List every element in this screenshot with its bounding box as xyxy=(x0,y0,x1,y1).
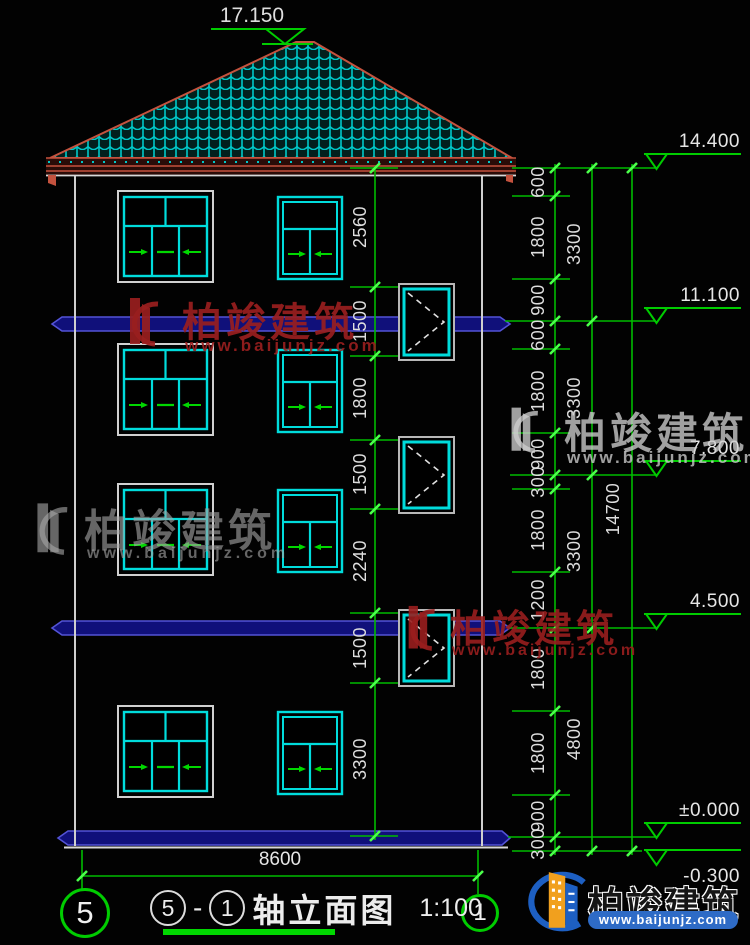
hip-roof xyxy=(46,42,516,186)
drawing-linework xyxy=(0,0,750,945)
big-window-f4 xyxy=(118,191,213,282)
company-logo-icon xyxy=(520,866,592,938)
watermark-logo-icon xyxy=(494,402,546,462)
title-axis-from: 5 xyxy=(150,890,186,926)
watermark-url: www.baijunjz.com xyxy=(567,448,750,468)
dim-subtotal: 3300 xyxy=(564,207,584,281)
dim-subtotal: 4800 xyxy=(564,702,584,776)
title-axis-to: 1 xyxy=(209,890,245,926)
watermark-url: www.baijunjz.com xyxy=(87,545,289,563)
watermark-logo-icon xyxy=(392,600,442,660)
watermark-url: www.baijunjz.com xyxy=(185,336,380,356)
watermark-logo-icon xyxy=(112,292,166,356)
dim-label: 2240 xyxy=(350,524,370,598)
company-logo-url: www.baijunjz.com xyxy=(588,911,738,929)
elevation-wall-top: 14.400 xyxy=(646,131,740,153)
dim-subtotal: 3300 xyxy=(564,514,584,588)
big-window-f3 xyxy=(118,344,213,435)
dim-label: 1800 xyxy=(528,493,548,567)
sliding-window-f1 xyxy=(278,712,342,794)
drawing-title: 5 - 1 轴立面图 1:100 xyxy=(150,884,482,932)
dim-total-width: 8600 xyxy=(230,849,330,871)
dim-label: 1500 xyxy=(350,611,370,685)
watermark-logo-icon xyxy=(18,497,76,565)
title-underline xyxy=(163,929,335,935)
title-scale: 1:100 xyxy=(419,894,482,923)
dim-label: 2560 xyxy=(350,190,370,264)
elevation-floor4: 11.100 xyxy=(646,285,740,307)
sliding-window-f4 xyxy=(278,197,342,279)
stair-window-1 xyxy=(399,284,454,360)
watermark-url: www.baijunjz.com xyxy=(452,642,638,660)
dim-label: 1800 xyxy=(350,361,370,435)
windows xyxy=(118,191,454,797)
axis-bubble-5: 5 xyxy=(60,888,110,938)
dim-label: 3300 xyxy=(350,722,370,796)
elevation-floor2: 4.500 xyxy=(646,591,740,613)
elevation-drawing: 17.150 14.400 11.100 7.800 4.500 ±0.000 … xyxy=(0,0,750,945)
title-name: 轴立面图 xyxy=(252,884,396,932)
sliding-window-f3 xyxy=(278,350,342,432)
stair-window-2 xyxy=(399,437,454,513)
dim-total-height: 14700 xyxy=(603,472,623,546)
elevation-roof: 17.150 xyxy=(208,4,296,28)
dim-label: 1500 xyxy=(350,437,370,511)
title-separator: - xyxy=(193,892,202,924)
elevation-ground: ±0.000 xyxy=(646,800,740,822)
big-window-f1 xyxy=(118,706,213,797)
